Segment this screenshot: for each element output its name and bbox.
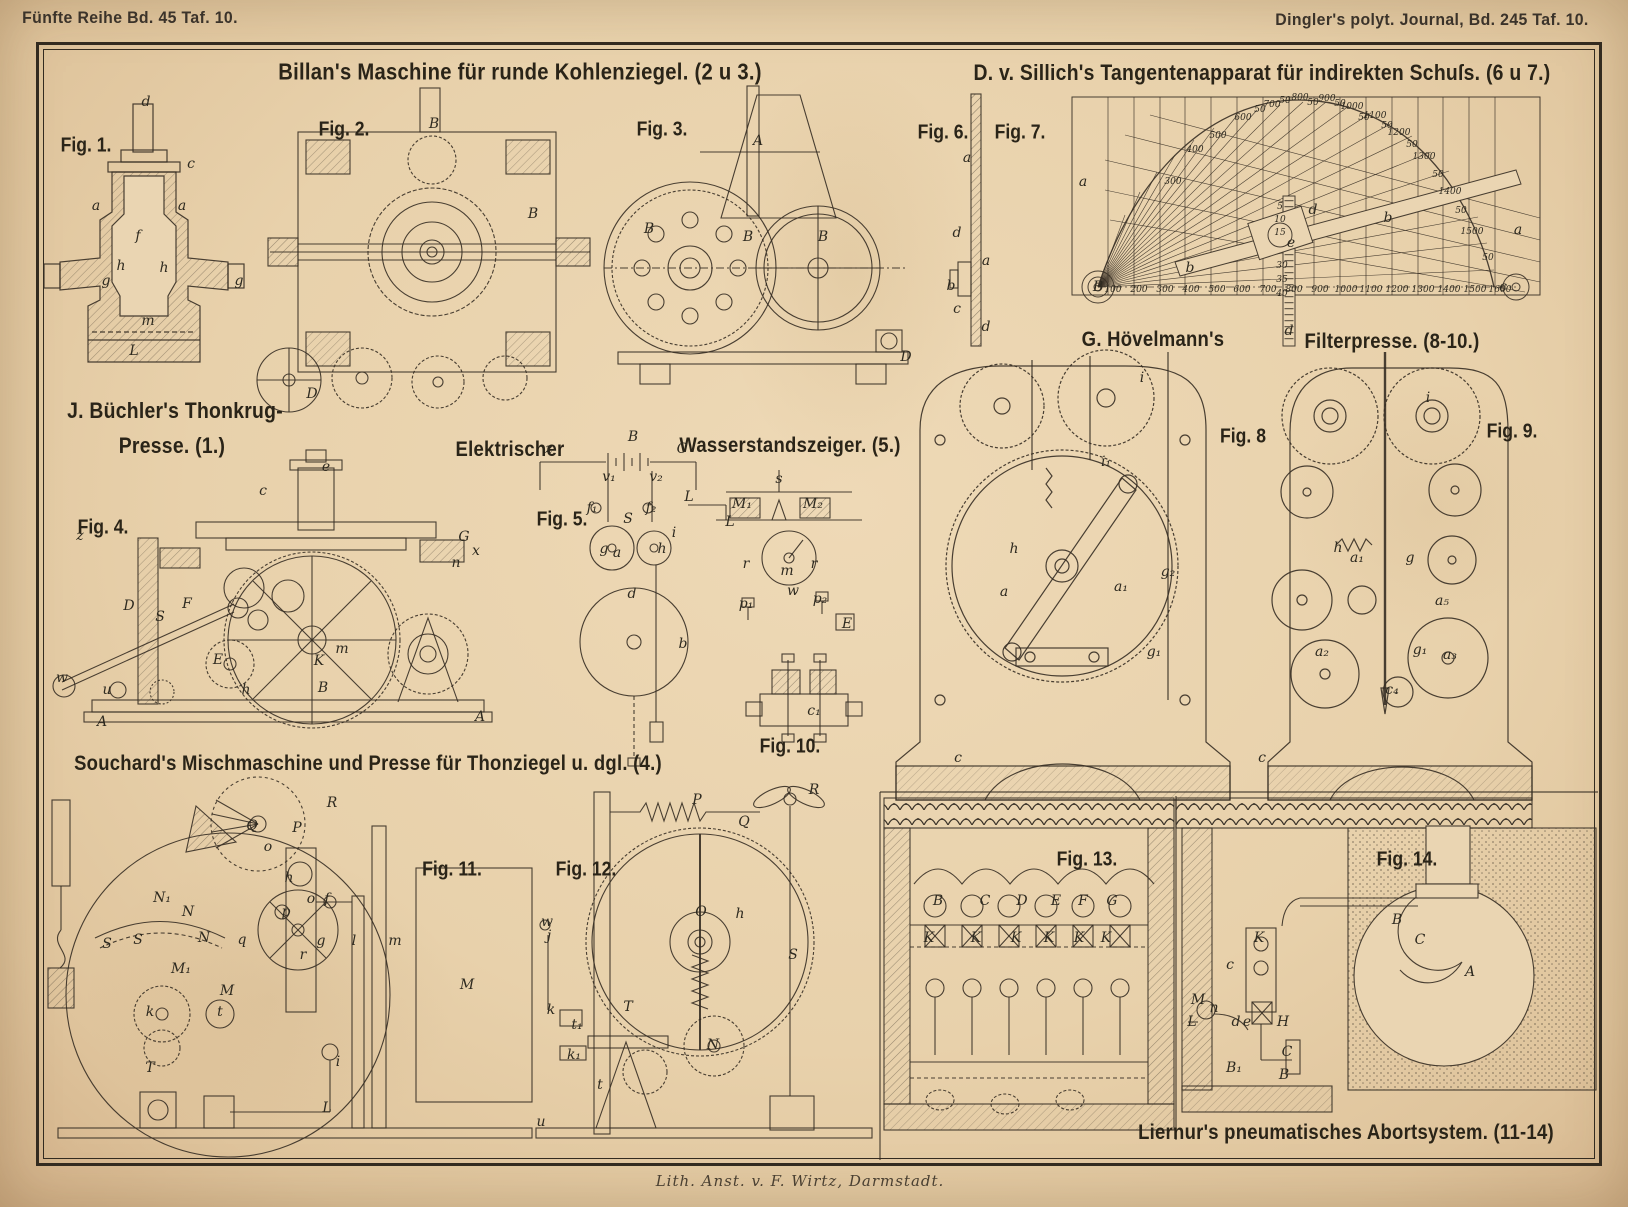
chart-number: 50 <box>1455 206 1466 216</box>
section-title: J. Büchler's Thonkrug- <box>67 398 283 424</box>
part-label: a₁ <box>1350 550 1364 566</box>
part-label: f₂ <box>646 500 657 516</box>
part-label: T <box>145 1060 154 1076</box>
section-title: Liernur's pneumatisches Abortsystem. (11… <box>1138 1121 1554 1145</box>
part-label: g <box>600 541 609 557</box>
lithograph-plate: Fünfte Reihe Bd. 45 Taf. 10. Dingler's p… <box>0 0 1628 1207</box>
chart-number: 1200 <box>1388 128 1411 138</box>
part-label: R <box>809 782 820 798</box>
part-label: d <box>142 94 151 110</box>
figure-label: Fig. 3. <box>637 119 688 142</box>
chart-number: 1000 <box>1341 102 1364 112</box>
part-label: a <box>1514 222 1522 238</box>
part-label: p₁ <box>739 596 754 612</box>
lithographer-imprint: Lith. Anst. v. F. Wirtz, Darmstadt. <box>656 1172 945 1190</box>
part-label: B <box>528 206 538 222</box>
section-title: D. v. Sillich's Tangentenapparat für ind… <box>974 60 1551 86</box>
part-label: f <box>135 228 140 244</box>
part-label: x <box>472 543 480 559</box>
part-label: M <box>1191 992 1205 1008</box>
part-label: G <box>1106 893 1117 909</box>
chart-number: 30 <box>1276 261 1287 271</box>
part-label: C <box>980 893 991 909</box>
part-label: u <box>536 1114 545 1130</box>
part-label: f <box>324 891 329 907</box>
part-label: a₃ <box>1443 647 1457 663</box>
part-label: d <box>628 586 637 602</box>
part-label: b <box>679 636 688 652</box>
part-label: h <box>159 260 168 276</box>
part-label: K <box>1044 930 1054 946</box>
figure-label: Fig. 10. <box>760 736 821 759</box>
part-label: g₂ <box>1161 564 1176 580</box>
chart-number: 800 <box>1291 93 1308 103</box>
part-label: b <box>947 278 956 294</box>
chart-number: 400 <box>1182 285 1199 295</box>
part-label: B <box>429 116 439 132</box>
part-label: L <box>1187 1014 1196 1030</box>
chart-number: 1300 <box>1413 152 1436 162</box>
part-label: g <box>317 933 326 949</box>
part-label: B <box>818 229 828 245</box>
part-label: L <box>322 1100 331 1116</box>
chart-number: 900 <box>1311 285 1328 295</box>
chart-number: 500 <box>1209 131 1226 141</box>
part-label: S <box>788 947 798 963</box>
part-label: F <box>182 596 192 612</box>
part-label: D <box>1016 893 1027 909</box>
part-label: K <box>1254 930 1264 946</box>
part-label: z <box>545 441 552 457</box>
part-label: g₁ <box>1413 642 1428 658</box>
part-label: K <box>971 930 981 946</box>
part-label: B <box>1093 279 1103 295</box>
part-label: A <box>1465 964 1475 980</box>
part-label: a₁ <box>1114 579 1128 595</box>
part-label: S <box>102 936 112 952</box>
part-label: p <box>282 904 291 920</box>
part-label: g <box>235 273 244 289</box>
part-label: s <box>775 471 782 487</box>
chart-number: 15 <box>1274 228 1285 238</box>
part-label: c <box>953 301 961 317</box>
part-label: D <box>123 598 134 614</box>
part-label: a <box>92 198 100 214</box>
part-label: K <box>1101 930 1111 946</box>
part-label: D <box>900 349 911 365</box>
part-label: H <box>1277 1014 1289 1030</box>
part-label: a₅ <box>1435 593 1449 609</box>
part-label: t <box>597 1077 603 1093</box>
part-label: P <box>692 792 701 808</box>
chart-number: 50 <box>1307 98 1318 108</box>
part-label: l <box>352 933 356 949</box>
chart-number: 300 <box>1156 285 1173 295</box>
part-label: C <box>677 441 688 457</box>
section-title: Presse. (1.) <box>119 433 225 459</box>
part-label: c <box>1226 957 1234 973</box>
chart-number: 1200 <box>1386 285 1409 295</box>
section-title: Filterpresse. (8-10.) <box>1304 330 1479 354</box>
part-label: B <box>644 221 654 237</box>
chart-number: 1100 <box>1364 111 1387 121</box>
part-label: v₂ <box>649 469 663 485</box>
header-right: Dingler's polyt. Journal, Bd. 245 Taf. 1… <box>1275 10 1588 30</box>
figure-label: Fig. 6. <box>918 122 969 145</box>
part-label: m <box>141 313 154 329</box>
part-label: d <box>1309 202 1318 218</box>
chart-number: 1400 <box>1438 285 1461 295</box>
figure-label: Fig. 2. <box>319 119 370 142</box>
figure-label: Fig. 12. <box>556 859 617 882</box>
part-label: e <box>1287 235 1295 251</box>
part-label: N <box>707 1037 719 1053</box>
chart-number: 200 <box>1130 285 1147 295</box>
part-label: B <box>1279 1067 1289 1083</box>
chart-number: 10 <box>1274 215 1285 225</box>
part-label: u <box>102 682 111 698</box>
part-label: d <box>1232 1014 1241 1030</box>
chart-number: 100 <box>1104 285 1121 295</box>
part-label: M <box>460 977 474 993</box>
part-label: c <box>954 750 962 766</box>
part-label: K <box>1074 930 1084 946</box>
part-label: k <box>146 1004 154 1020</box>
part-label: i <box>672 525 676 541</box>
part-label: n <box>1209 1000 1218 1016</box>
part-label: h <box>1333 540 1342 556</box>
figure-label: Fig. 7. <box>995 122 1046 145</box>
part-label: R <box>327 795 338 811</box>
part-label: i <box>336 1054 340 1070</box>
part-label: B <box>743 229 753 245</box>
part-label: o <box>307 891 315 907</box>
part-label: q <box>238 932 247 948</box>
figure-label: Fig. 1. <box>61 135 112 158</box>
part-label: e <box>1243 1014 1251 1030</box>
part-label: P <box>292 820 301 836</box>
part-label: g <box>1406 550 1415 566</box>
section-title: G. Hövelmann's <box>1082 328 1225 352</box>
part-label: v₁ <box>602 469 616 485</box>
part-label: B <box>1392 912 1402 928</box>
chart-number: 700 <box>1259 285 1276 295</box>
part-label: M₁ <box>732 496 752 512</box>
section-title: Souchard's Mischmaschine und Presse für … <box>74 752 662 776</box>
part-label: j <box>547 928 551 944</box>
part-label: d <box>953 225 962 241</box>
part-label: Q <box>738 814 749 830</box>
part-label: D <box>306 386 317 402</box>
part-label: f₁ <box>587 500 598 516</box>
part-label: a <box>178 198 186 214</box>
part-label: i₁ <box>1101 454 1111 470</box>
part-label: t₁ <box>571 1017 582 1033</box>
chart-number: 1500 <box>1461 227 1484 237</box>
chart-number: 35 <box>1276 275 1287 285</box>
header-left: Fünfte Reihe Bd. 45 Taf. 10. <box>22 8 238 28</box>
part-label: Q <box>246 818 257 834</box>
part-label: m <box>388 933 401 949</box>
part-label: z <box>76 528 83 544</box>
part-label: B <box>318 680 328 696</box>
part-label: h <box>1009 541 1018 557</box>
part-label: t <box>217 1004 223 1020</box>
part-label: p₂ <box>813 591 828 607</box>
figure-label: Fig. 14. <box>1377 849 1438 872</box>
chart-number: 600 <box>1233 285 1250 295</box>
part-label: E <box>842 616 852 632</box>
part-label: d <box>982 319 991 335</box>
part-label: A <box>475 709 485 725</box>
part-label: C <box>1415 932 1426 948</box>
part-label: B <box>628 429 638 445</box>
part-label: b <box>1186 260 1195 276</box>
figure-label: Fig. 11. <box>422 859 482 882</box>
figure-label: Fig. 13. <box>1057 849 1118 872</box>
part-label: h <box>657 541 666 557</box>
chart-number: 700 <box>1263 100 1280 110</box>
part-label: c <box>187 156 195 172</box>
part-label: O <box>695 904 706 920</box>
part-label: o <box>264 839 272 855</box>
part-label: e <box>322 459 330 475</box>
part-label: A <box>97 714 107 730</box>
chart-number: 1600 <box>1489 285 1512 295</box>
chart-number: 1000 <box>1335 285 1358 295</box>
part-label: b <box>1384 210 1393 226</box>
part-label: K <box>314 653 324 669</box>
figure-label: Fig. 9. <box>1487 421 1538 444</box>
chart-number: 1300 <box>1412 285 1435 295</box>
part-label: c <box>259 483 267 499</box>
part-label: F <box>1078 893 1088 909</box>
section-title: Billan's Maschine für runde Kohlenziegel… <box>278 59 762 86</box>
part-label: M <box>220 983 234 999</box>
chart-number: 50 <box>1406 140 1417 150</box>
part-label: G <box>458 529 469 545</box>
figure-label: Fig. 5. <box>537 509 588 532</box>
part-label: M₂ <box>803 496 823 512</box>
part-label: h <box>735 906 744 922</box>
chart-number: 1400 <box>1439 187 1462 197</box>
part-label: C <box>1282 1044 1293 1060</box>
chart-number: 5 <box>1277 202 1283 212</box>
part-label: N <box>198 930 210 946</box>
chart-number: 300 <box>1164 177 1181 187</box>
part-label: m <box>780 563 793 579</box>
chart-number: 400 <box>1186 145 1203 155</box>
part-label: S <box>133 932 143 948</box>
part-label: c₁ <box>807 703 820 719</box>
part-label: E <box>1051 893 1061 909</box>
part-label: a <box>1000 584 1008 600</box>
part-label: T <box>623 999 632 1015</box>
part-label: r <box>811 556 818 572</box>
part-label: B <box>933 893 943 909</box>
part-label: c <box>1258 750 1266 766</box>
part-label: a <box>1079 174 1087 190</box>
part-label: S <box>623 511 633 527</box>
part-label: a <box>963 150 971 166</box>
part-label: n <box>451 555 460 571</box>
part-label: m <box>335 641 348 657</box>
figure-label: Fig. 8 <box>1220 426 1266 449</box>
part-label: a <box>613 545 621 561</box>
part-label: L <box>129 343 138 359</box>
chart-number: 50 <box>1279 96 1290 106</box>
part-label: g₁ <box>1147 644 1162 660</box>
chart-number: 900 <box>1318 94 1335 104</box>
chart-number: 50 <box>1432 170 1443 180</box>
part-label: E <box>213 652 223 668</box>
part-label: h <box>284 870 293 886</box>
part-label: S <box>155 609 165 625</box>
part-label: N <box>182 904 194 920</box>
section-title: Wasserstandszeiger. (5.) <box>679 434 900 458</box>
part-label: d <box>1285 323 1294 339</box>
chart-number: 40 <box>1276 289 1287 299</box>
part-label: K <box>1011 930 1021 946</box>
part-label: w <box>56 670 68 686</box>
part-label: a <box>982 253 990 269</box>
chart-number: 800 <box>1285 285 1302 295</box>
part-label: r <box>743 556 750 572</box>
figure-label: Fig. 4. <box>78 517 129 540</box>
part-label: A <box>753 133 763 149</box>
part-label: a₂ <box>1315 644 1329 660</box>
chart-number: 1100 <box>1360 285 1383 295</box>
part-label: i <box>1140 370 1144 386</box>
part-label: K <box>924 930 934 946</box>
chart-number: 1500 <box>1464 285 1487 295</box>
part-label: g <box>102 273 111 289</box>
part-label: h <box>116 258 125 274</box>
part-label: L <box>684 489 693 505</box>
chart-number: 500 <box>1208 285 1225 295</box>
part-label: w <box>787 583 799 599</box>
part-label: k₁ <box>567 1047 581 1063</box>
part-label: B₁ <box>1226 1060 1242 1076</box>
chart-number: 50 <box>1482 253 1493 263</box>
part-label: c₄ <box>1385 682 1398 698</box>
part-label: i <box>1426 390 1430 406</box>
part-label: L <box>725 514 734 530</box>
chart-number: 600 <box>1234 113 1251 123</box>
part-label: N₁ <box>153 890 171 906</box>
part-label: h <box>241 682 250 698</box>
part-label: r <box>300 947 307 963</box>
part-label: k <box>547 1002 555 1018</box>
part-label: M₁ <box>171 961 191 977</box>
